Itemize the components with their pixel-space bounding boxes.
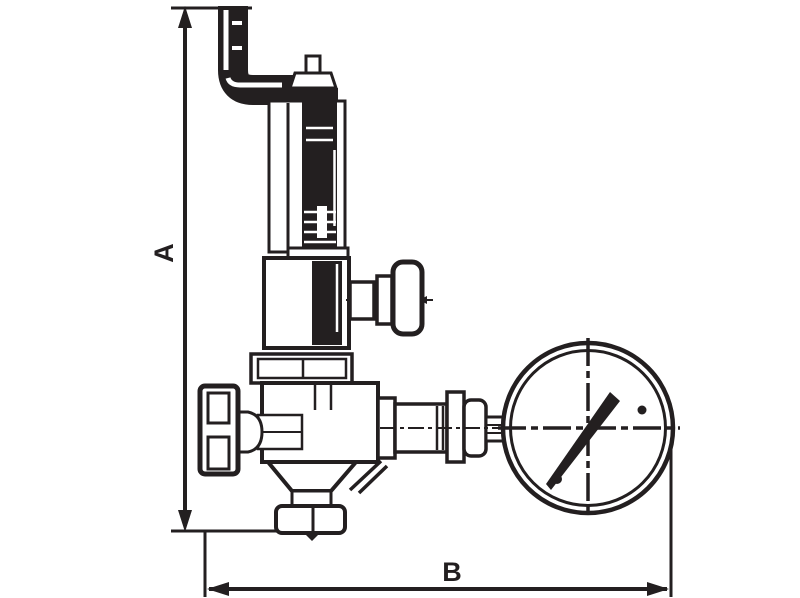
packing-nut [350,282,374,319]
drawing-canvas: A B [0,0,800,598]
inlet-handwheel [200,386,262,474]
arrowhead-left-icon [207,582,229,596]
gauge-dial-dot [638,406,647,415]
dimension-b-label: B [442,557,462,587]
tee-handle-valve [346,262,433,334]
valve-technical-drawing: A B [0,0,800,598]
gland-bulge [238,412,262,452]
adjusting-stem [306,56,320,74]
inlet-pipe-elbow [226,6,302,90]
adjusting-cap-nut [290,73,336,88]
arrowhead-right-icon [647,582,669,596]
needle-pivot-dot [552,474,562,484]
pipe-thread-tick [232,21,242,25]
body-funnel [268,462,356,491]
spring-bonnet [264,258,349,348]
outlet-union-fittings [378,392,506,462]
bottom-outlet-flange [276,506,345,541]
handwheel-spoke-top [208,393,229,423]
pipe-thread-tick [232,46,242,50]
tee-handle-bar [393,262,422,334]
drain-tip [304,533,320,541]
bonnet-flange [251,354,352,383]
dimension-a-label: A [149,243,179,263]
cap-collar [286,88,338,101]
adjusting-assembly [264,56,349,348]
spring-housing-tube [269,101,345,252]
pressure-gauge [498,338,680,518]
arrowhead-down-icon [178,510,192,532]
valve-body [242,383,387,541]
handwheel-spoke-bottom [208,437,229,469]
handle-hub [377,276,392,324]
